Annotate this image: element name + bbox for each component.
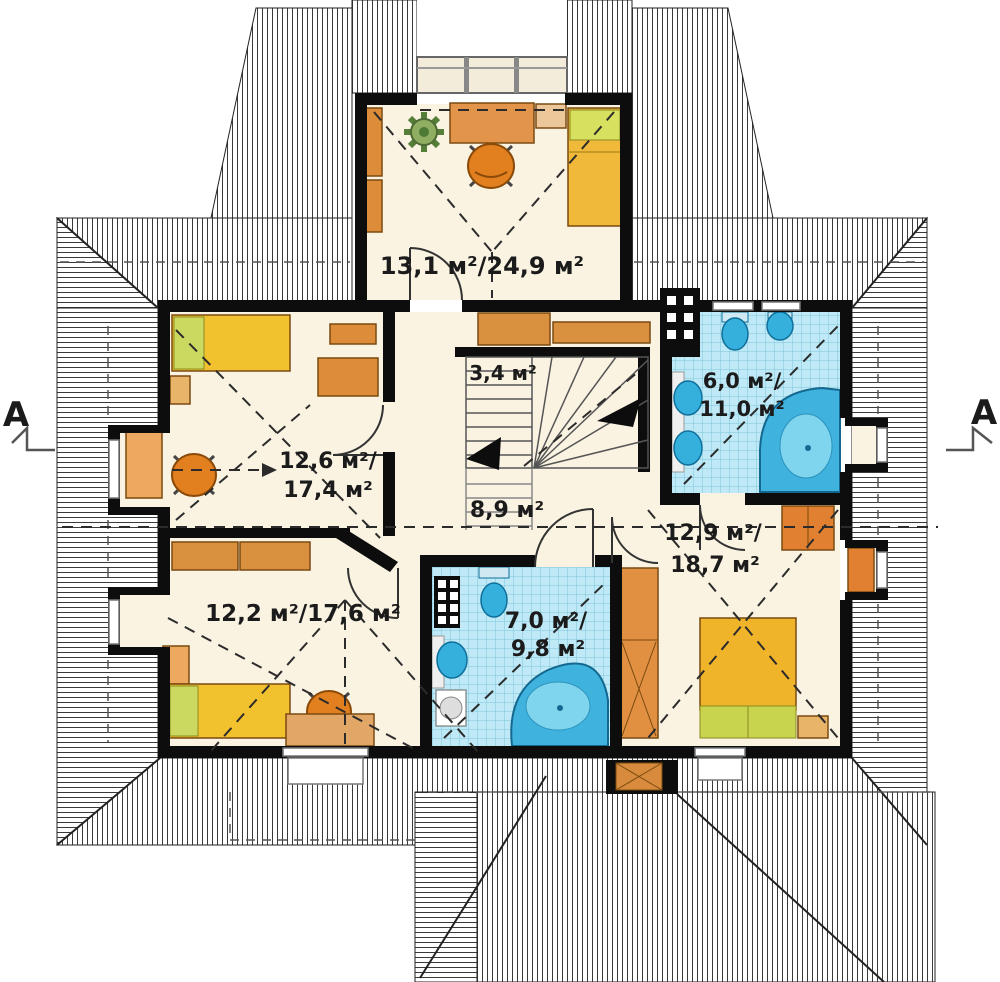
bed-single xyxy=(172,315,290,371)
window xyxy=(877,552,887,588)
window xyxy=(109,440,119,498)
desk xyxy=(286,714,374,746)
label-bath-right-2: 11,0 м² xyxy=(699,397,785,421)
roof-bottom-wing-west xyxy=(415,792,477,982)
cabinet xyxy=(848,548,874,592)
roof-top-wing-right-plane xyxy=(632,8,773,218)
label-stairs: 3,4 м² xyxy=(469,361,537,385)
bidet xyxy=(767,312,793,340)
dresser xyxy=(478,313,550,345)
sink xyxy=(674,431,702,465)
dresser xyxy=(318,358,378,396)
window xyxy=(695,748,745,756)
chimney-top xyxy=(660,288,700,357)
label-bath-bottom-2: 9,8 м² xyxy=(511,637,585,662)
plant xyxy=(404,112,444,152)
chimney-bottom xyxy=(606,760,678,794)
label-room-left-2: 17,4 м² xyxy=(283,478,373,503)
top-gable xyxy=(417,0,567,93)
roof-bottom-wing xyxy=(415,792,935,982)
toilet xyxy=(722,318,748,350)
window-mullion xyxy=(464,57,469,93)
window-mullion xyxy=(514,57,519,93)
dresser xyxy=(553,322,650,343)
dresser xyxy=(330,324,376,344)
label-hall: 8,9 м² xyxy=(470,498,544,523)
office-chair xyxy=(468,144,514,188)
nightstand xyxy=(170,376,190,404)
roof-top-wing-left-plane xyxy=(211,8,352,218)
floor-plan-page: 13,1 м²/24,9 м² 3,4 м² 6,0 м²/ 11,0 м² 1… xyxy=(0,0,1000,982)
toilet-tank xyxy=(479,567,509,578)
label-room-top: 13,1 м²/24,9 м² xyxy=(380,252,584,280)
bed-single xyxy=(568,108,622,226)
sink xyxy=(437,642,467,678)
roof-gable-left-strip xyxy=(352,0,417,93)
heater-grid xyxy=(434,576,460,628)
label-room-right-1: 12,9 м²/ xyxy=(664,521,763,546)
label-bath-bottom-1: 7,0 м²/ xyxy=(505,609,588,634)
label-bath-right-1: 6,0 м²/ xyxy=(703,369,782,393)
floor-alcove-right1 xyxy=(852,426,876,464)
office-chair xyxy=(172,454,216,496)
window xyxy=(109,600,119,644)
gable-face xyxy=(417,0,567,57)
roof-gable-right-strip xyxy=(567,0,632,93)
sink xyxy=(674,381,702,415)
window xyxy=(877,428,887,462)
label-room-right-2: 18,7 м² xyxy=(670,553,760,578)
wardrobe-tall xyxy=(620,568,658,738)
label-room-bottom-left: 12,2 м²/17,6 м² xyxy=(205,601,401,627)
window xyxy=(713,302,753,310)
desk xyxy=(126,432,162,498)
dormer-window-box xyxy=(698,758,742,780)
dormer-window-box xyxy=(288,758,363,784)
side-shelf xyxy=(536,104,566,128)
toilet xyxy=(481,583,507,617)
dresser xyxy=(172,542,238,570)
bed-double xyxy=(700,618,796,738)
balcony-window-band xyxy=(417,57,567,93)
window xyxy=(762,302,800,310)
label-room-left-1: 12,6 м²/ xyxy=(279,449,378,474)
window xyxy=(283,748,368,756)
dresser xyxy=(240,542,310,570)
floor-dormer-left2 xyxy=(120,595,170,647)
section-marker-right: A xyxy=(971,393,998,433)
floor-plan-drawing: 13,1 м²/24,9 м² 3,4 м² 6,0 м²/ 11,0 м² 1… xyxy=(0,0,1000,982)
